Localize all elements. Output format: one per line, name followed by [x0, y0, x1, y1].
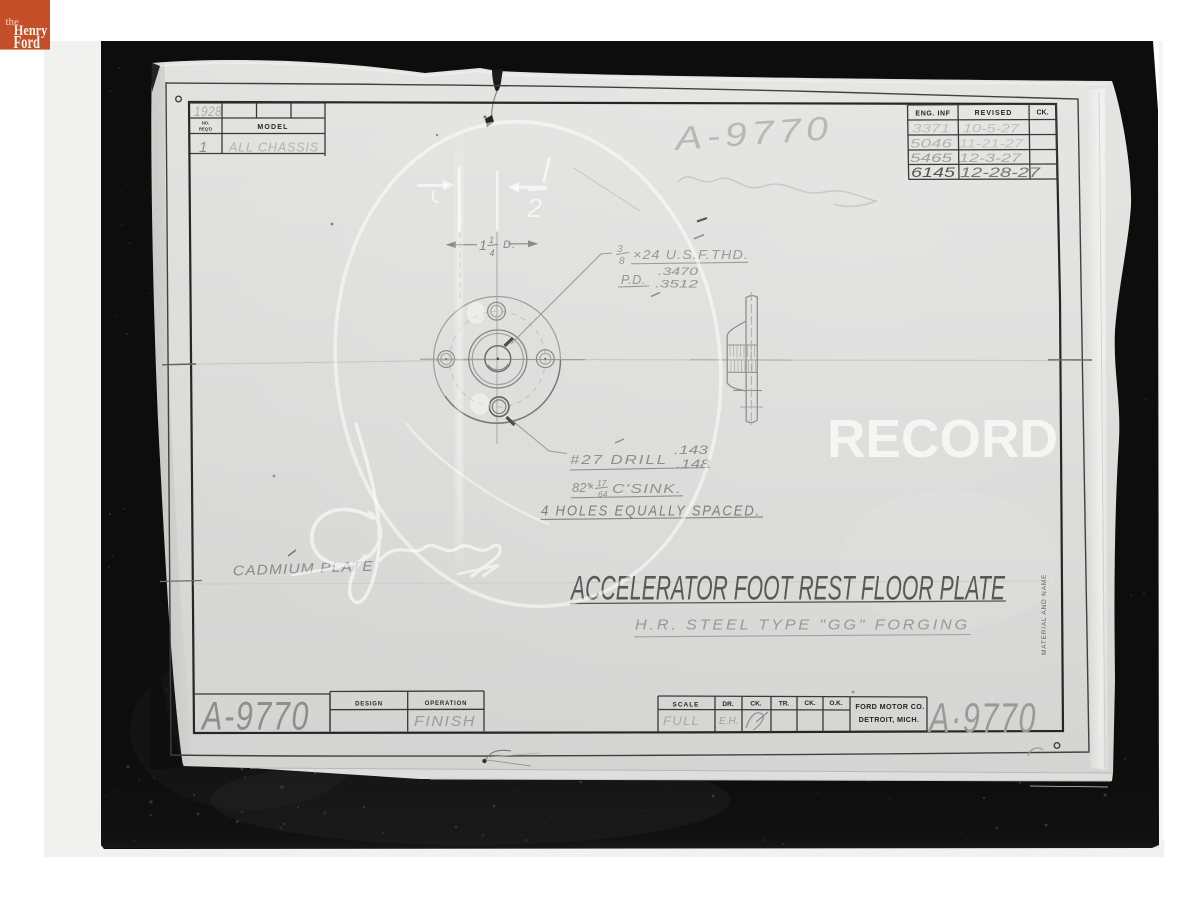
svg-text:FORD MOTOR CO.: FORD MOTOR CO.	[855, 702, 924, 711]
svg-text:8: 8	[619, 256, 625, 267]
svg-text:H.R. STEEL TYPE "GG" FORGING: H.R. STEEL TYPE "GG" FORGING	[635, 618, 970, 634]
svg-text:10-5-27: 10-5-27	[963, 122, 1021, 136]
svg-text:FULL: FULL	[663, 714, 700, 728]
svg-text:ALL CHASSIS: ALL CHASSIS	[228, 141, 319, 155]
svg-text:SCALE: SCALE	[672, 702, 699, 709]
svg-text:×: ×	[588, 482, 594, 493]
svg-text:MATERIAL AND NAME: MATERIAL AND NAME	[1041, 574, 1048, 655]
svg-text:1: 1	[199, 139, 207, 156]
svg-text:2: 2	[526, 193, 542, 223]
svg-text:A-9770: A-9770	[200, 695, 310, 739]
svg-text:1: 1	[489, 235, 494, 245]
svg-text:C'SINK.: C'SINK.	[612, 481, 682, 496]
svg-text:DR.: DR.	[722, 701, 733, 708]
svg-text:O.K.: O.K.	[829, 700, 843, 707]
svg-text:REQ'D: REQ'D	[199, 127, 212, 132]
svg-text:A·9770: A·9770	[927, 694, 1037, 741]
svg-text:.143: .143	[674, 445, 709, 457]
svg-text:E.H.: E.H.	[719, 716, 738, 727]
svg-text:6145: 6145	[911, 165, 956, 180]
svg-text:4: 4	[490, 248, 495, 258]
svg-text:CK.: CK.	[1036, 110, 1048, 117]
svg-text:RECORD: RECORD	[827, 409, 1058, 469]
svg-text:5465: 5465	[910, 151, 953, 165]
svg-text:11-21-27: 11-21-27	[959, 137, 1025, 151]
svg-text:1928: 1928	[194, 103, 222, 119]
svg-text:1: 1	[479, 237, 487, 253]
svg-text:5046: 5046	[910, 137, 953, 151]
svg-text:NO.: NO.	[202, 121, 209, 126]
svg-text:12-3-27: 12-3-27	[959, 151, 1023, 165]
svg-text:.3470: .3470	[658, 266, 699, 278]
svg-text:P.D.: P.D.	[621, 273, 646, 287]
svg-text:REVISED: REVISED	[975, 110, 1013, 117]
svg-text:CK.: CK.	[804, 700, 815, 707]
svg-text:DESIGN: DESIGN	[355, 702, 383, 708]
svg-text:ENG. INF: ENG. INF	[915, 111, 950, 118]
svg-text:DETROIT, MICH.: DETROIT, MICH.	[859, 715, 920, 724]
svg-text:D.: D.	[503, 239, 516, 251]
svg-text:#27 DRILL: #27 DRILL	[570, 452, 668, 467]
svg-text:Ford: Ford	[14, 32, 41, 52]
svg-text:TR.: TR.	[779, 701, 790, 708]
svg-text:FINISH: FINISH	[414, 713, 476, 730]
svg-text:OPERATION: OPERATION	[425, 701, 467, 707]
svg-text:12-28-27: 12-28-27	[960, 165, 1041, 180]
svg-text:3371: 3371	[912, 122, 950, 136]
svg-text:.3512: .3512	[655, 279, 698, 291]
svg-text:CK.: CK.	[750, 701, 761, 708]
svg-text:MODEL: MODEL	[257, 124, 288, 131]
svg-text:17: 17	[597, 478, 607, 488]
